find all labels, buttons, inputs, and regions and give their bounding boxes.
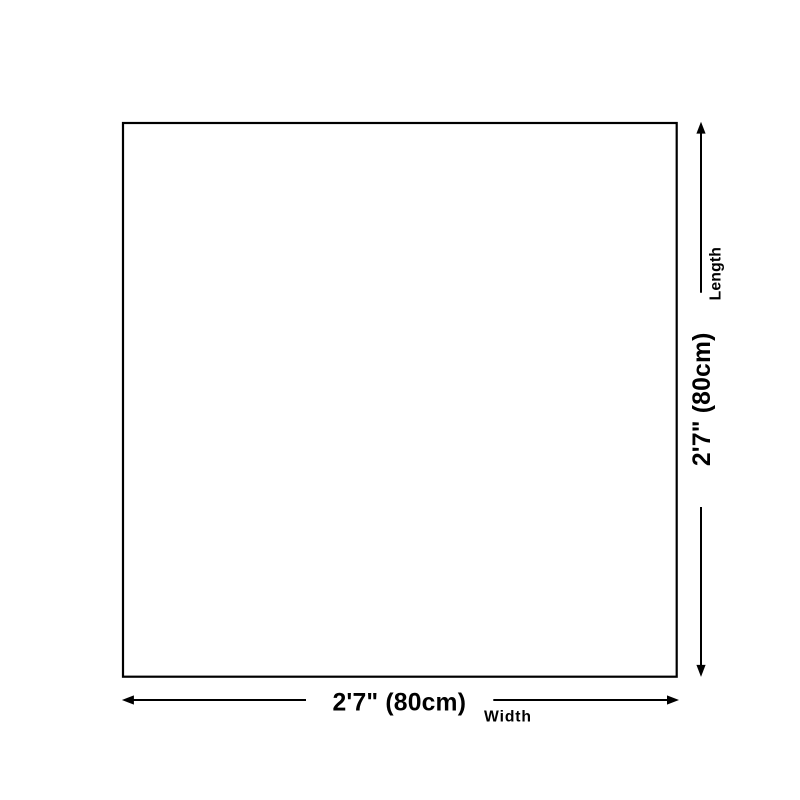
svg-text:2'7" (80cm): 2'7" (80cm) — [689, 332, 716, 466]
svg-text:Width: Width — [484, 709, 532, 726]
svg-text:2'7" (80cm): 2'7" (80cm) — [332, 690, 466, 717]
svg-text:Length: Length — [708, 247, 725, 300]
